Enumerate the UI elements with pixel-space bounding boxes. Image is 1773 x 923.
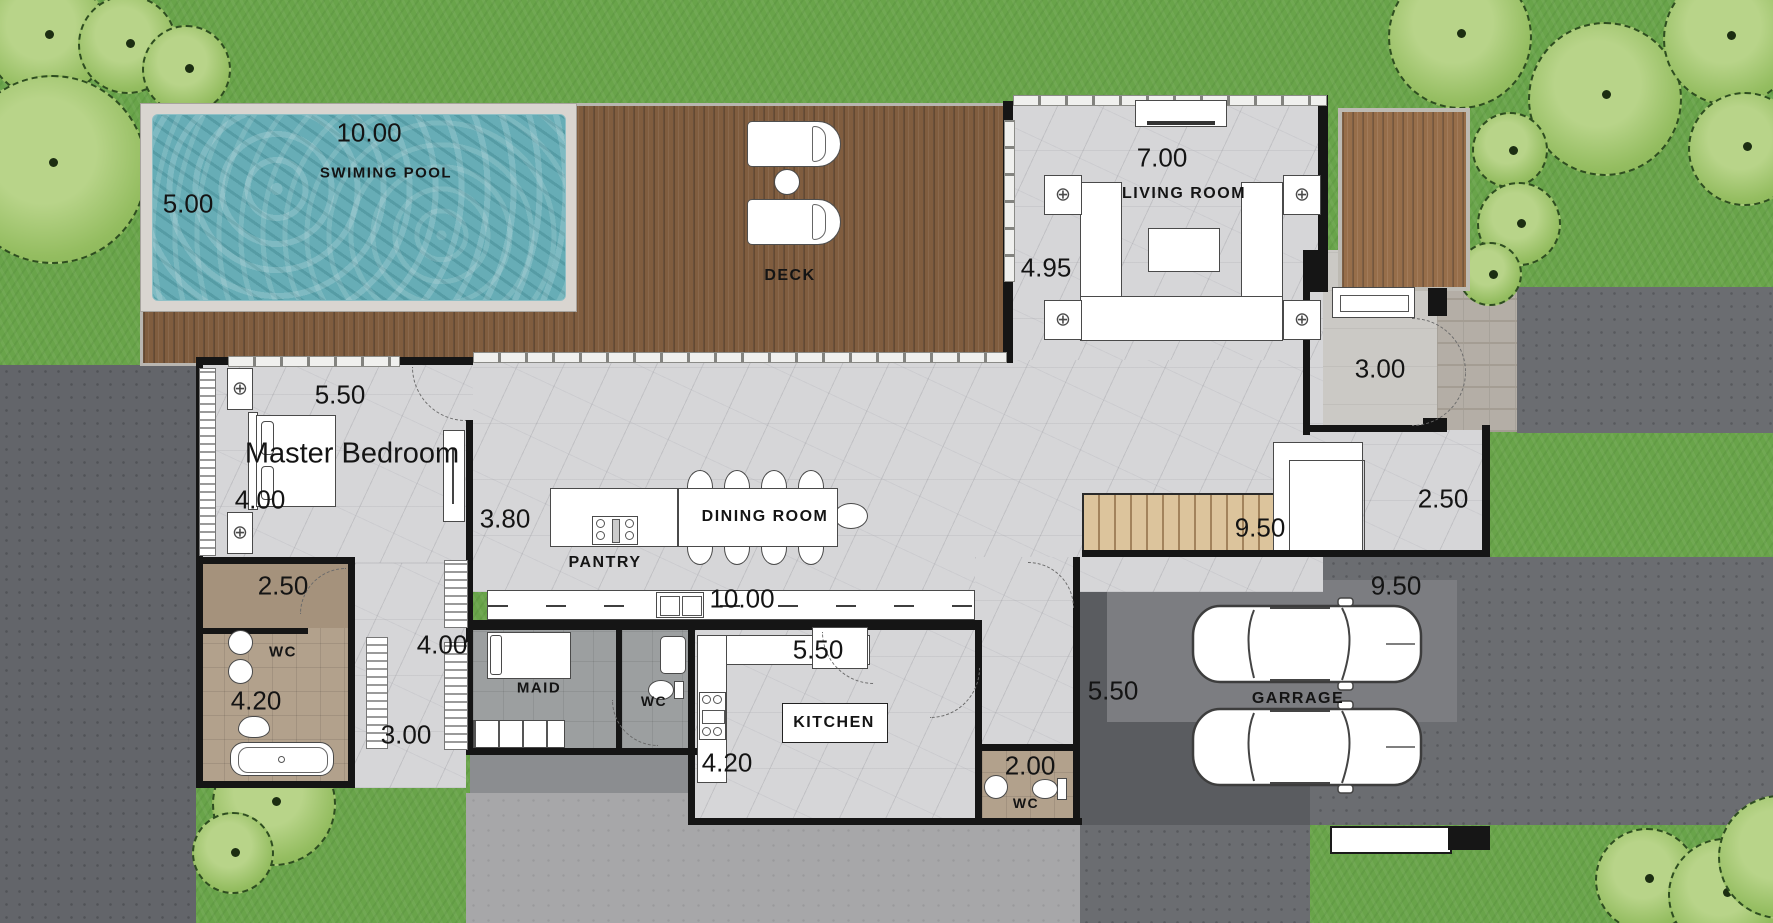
tree-icon bbox=[1688, 92, 1773, 206]
wall bbox=[1482, 425, 1490, 557]
maid-dresser bbox=[473, 720, 565, 748]
dining-chair bbox=[834, 503, 868, 529]
maid-wc-sink bbox=[660, 636, 686, 674]
burner-icon bbox=[702, 727, 711, 736]
car-icon bbox=[1190, 700, 1424, 794]
driveway-upper bbox=[1517, 287, 1773, 433]
master-bedroom-label: Master Bedroom bbox=[245, 438, 459, 471]
wall bbox=[1073, 557, 1080, 825]
side-deck-pad bbox=[1338, 108, 1470, 291]
tree-icon bbox=[0, 75, 147, 264]
sofa-bottom-seat bbox=[1080, 296, 1283, 341]
wall bbox=[196, 557, 355, 564]
garage-width-dim: 9.50 bbox=[1371, 571, 1422, 602]
master-wc-depth-dim: 4.20 bbox=[231, 686, 282, 717]
wall bbox=[196, 781, 355, 788]
bathtub-drain bbox=[278, 756, 285, 763]
master-wc-width-dim: 2.50 bbox=[258, 571, 309, 602]
dining-width-dim: 3.80 bbox=[480, 504, 531, 535]
bedroom-deck-window bbox=[228, 356, 400, 367]
maid-room-label: MAID bbox=[517, 680, 561, 697]
plant-icon: ⊕ bbox=[232, 378, 248, 401]
burner-icon bbox=[713, 695, 722, 704]
oven-front bbox=[702, 710, 725, 724]
bedroom-width-dim: 5.50 bbox=[315, 380, 366, 411]
pool-label: SWIMING POOL bbox=[320, 165, 452, 182]
wall bbox=[688, 818, 1082, 825]
sofa-right-arm bbox=[1241, 182, 1283, 304]
wall bbox=[466, 420, 473, 563]
coffee-table bbox=[1148, 228, 1220, 272]
living-depth-dim: 4.95 bbox=[1021, 253, 1072, 284]
deck-side-table bbox=[774, 169, 800, 195]
cooktop-center bbox=[612, 519, 620, 543]
wc-sink bbox=[228, 659, 253, 684]
guest-wc-width-dim: 2.00 bbox=[1005, 751, 1056, 782]
hallway-width-dim: 4.00 bbox=[417, 630, 468, 661]
burner-icon bbox=[625, 531, 634, 540]
wall bbox=[348, 557, 355, 788]
wall bbox=[975, 620, 982, 825]
toilet-tank bbox=[674, 681, 684, 699]
wall bbox=[1428, 288, 1447, 316]
plant-icon: ⊕ bbox=[1055, 184, 1071, 207]
plant-icon: ⊕ bbox=[232, 522, 248, 545]
kitchen-depth-dim: 4.20 bbox=[702, 748, 753, 779]
tree-icon bbox=[1528, 22, 1682, 176]
side-passage-dim: 2.50 bbox=[1418, 484, 1469, 515]
dining-room-label: DINING ROOM bbox=[702, 508, 829, 526]
kitchen-label: KITCHEN bbox=[793, 714, 875, 732]
side-pavement bbox=[0, 365, 196, 923]
burner-icon bbox=[713, 727, 722, 736]
wall bbox=[470, 748, 702, 755]
sink-bowl bbox=[660, 596, 680, 616]
plant-icon: ⊕ bbox=[1294, 184, 1310, 207]
wall bbox=[616, 630, 622, 755]
sink-bowl bbox=[682, 596, 702, 616]
wall bbox=[1082, 550, 1310, 557]
closet-inner bbox=[1289, 460, 1365, 555]
entry-depth-dim: 3.00 bbox=[1355, 354, 1406, 385]
kitchen-width-dim: 5.50 bbox=[793, 635, 844, 666]
burner-icon bbox=[596, 519, 605, 528]
hallway-exit-dim: 3.00 bbox=[381, 720, 432, 751]
pillow bbox=[490, 635, 502, 675]
entry-step-line bbox=[1340, 295, 1409, 312]
wall bbox=[1310, 550, 1490, 557]
burner-icon bbox=[596, 531, 605, 540]
sun-lounger bbox=[747, 121, 841, 167]
wardrobe bbox=[199, 368, 216, 556]
garage-label: GARRAGE bbox=[1252, 690, 1344, 708]
burner-icon bbox=[702, 695, 711, 704]
guest-wc-label: WC bbox=[1013, 795, 1039, 811]
car-icon bbox=[1190, 597, 1424, 691]
wall bbox=[196, 628, 308, 634]
stairs-length-dim: 9.50 bbox=[1235, 513, 1286, 544]
bush-icon bbox=[192, 812, 274, 894]
tv-icon bbox=[1147, 121, 1215, 125]
sun-lounger bbox=[747, 199, 841, 245]
counter-length-dim: 10.00 bbox=[709, 584, 774, 615]
wall bbox=[1303, 250, 1328, 292]
burner-icon bbox=[625, 519, 634, 528]
hall-closet bbox=[444, 560, 468, 628]
gate-post-dark bbox=[1448, 826, 1490, 850]
toilet-icon bbox=[238, 716, 270, 738]
gate-post bbox=[1330, 826, 1452, 854]
driveway-exit bbox=[1080, 825, 1310, 923]
tree-icon bbox=[142, 25, 231, 114]
wall bbox=[688, 630, 695, 825]
wc-sink bbox=[228, 630, 253, 655]
plant-icon: ⊕ bbox=[1055, 309, 1071, 332]
master-wc-label: WC bbox=[269, 644, 297, 661]
plant-icon: ⊕ bbox=[1294, 309, 1310, 332]
bedroom-depth-dim: 4.00 bbox=[235, 485, 286, 516]
pantry-label: PANTRY bbox=[569, 554, 642, 572]
bush-icon bbox=[1472, 112, 1548, 188]
tree-icon bbox=[1388, 0, 1532, 109]
sofa-left-arm bbox=[1080, 182, 1122, 304]
wall bbox=[1310, 425, 1430, 432]
hall-deck-window bbox=[473, 352, 1007, 363]
maid-wc-label: WC bbox=[641, 693, 667, 709]
garage-depth-dim: 5.50 bbox=[1088, 676, 1139, 707]
pool-width-dim: 5.00 bbox=[163, 189, 214, 220]
floor-plan-canvas: ⊕ ⊕ ⊕ ⊕ ⊕ ⊕ bbox=[0, 0, 1773, 923]
living-room-label: LIVING ROOM bbox=[1122, 185, 1246, 203]
deck-living-window bbox=[1004, 120, 1015, 282]
wall bbox=[470, 620, 982, 630]
pool-length-dim: 10.00 bbox=[336, 118, 401, 149]
living-width-dim: 7.00 bbox=[1137, 143, 1188, 174]
deck-label: DECK bbox=[764, 267, 815, 285]
toilet-tank bbox=[1057, 778, 1067, 800]
